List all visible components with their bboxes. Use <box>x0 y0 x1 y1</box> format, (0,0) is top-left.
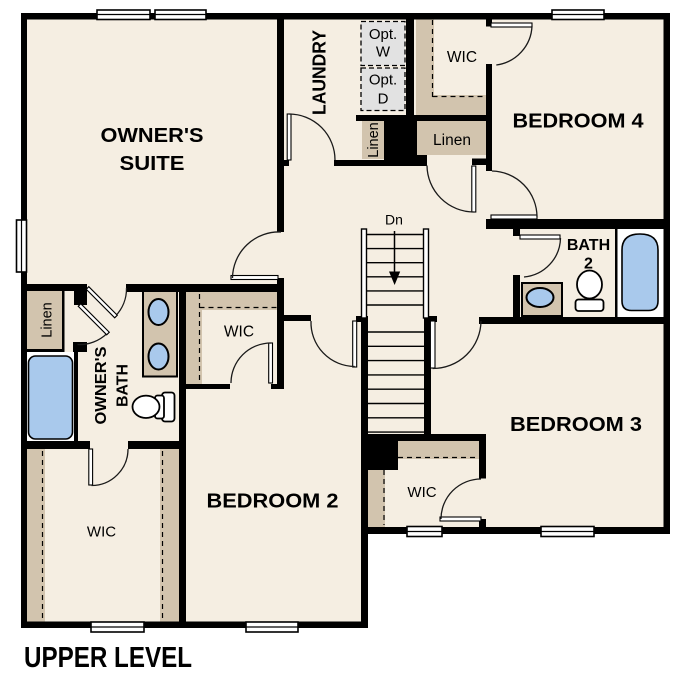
svg-text:BEDROOM 3: BEDROOM 3 <box>510 414 642 436</box>
svg-text:BATH: BATH <box>115 364 132 407</box>
svg-text:LAUNDRY: LAUNDRY <box>310 30 330 115</box>
svg-text:WIC: WIC <box>407 484 436 501</box>
svg-text:UPPER LEVEL: UPPER LEVEL <box>24 642 192 674</box>
svg-text:Opt.: Opt. <box>369 26 397 43</box>
svg-text:WIC: WIC <box>447 49 477 66</box>
svg-text:Linen: Linen <box>366 122 382 157</box>
svg-text:2: 2 <box>584 256 593 273</box>
svg-text:W: W <box>376 44 391 61</box>
svg-text:SUITE: SUITE <box>120 153 185 175</box>
svg-text:BEDROOM 2: BEDROOM 2 <box>207 491 339 513</box>
svg-text:OWNER'S: OWNER'S <box>101 125 204 147</box>
svg-text:Linen: Linen <box>40 302 56 337</box>
svg-text:Dn: Dn <box>385 212 403 228</box>
svg-text:BATH: BATH <box>567 237 610 254</box>
svg-text:WIC: WIC <box>87 524 116 541</box>
svg-text:WIC: WIC <box>224 324 254 341</box>
svg-text:OWNER'S: OWNER'S <box>93 347 110 425</box>
svg-text:Linen: Linen <box>433 132 471 149</box>
svg-text:Opt.: Opt. <box>369 72 397 89</box>
svg-text:BEDROOM 4: BEDROOM 4 <box>513 111 645 133</box>
svg-text:D: D <box>378 91 389 108</box>
